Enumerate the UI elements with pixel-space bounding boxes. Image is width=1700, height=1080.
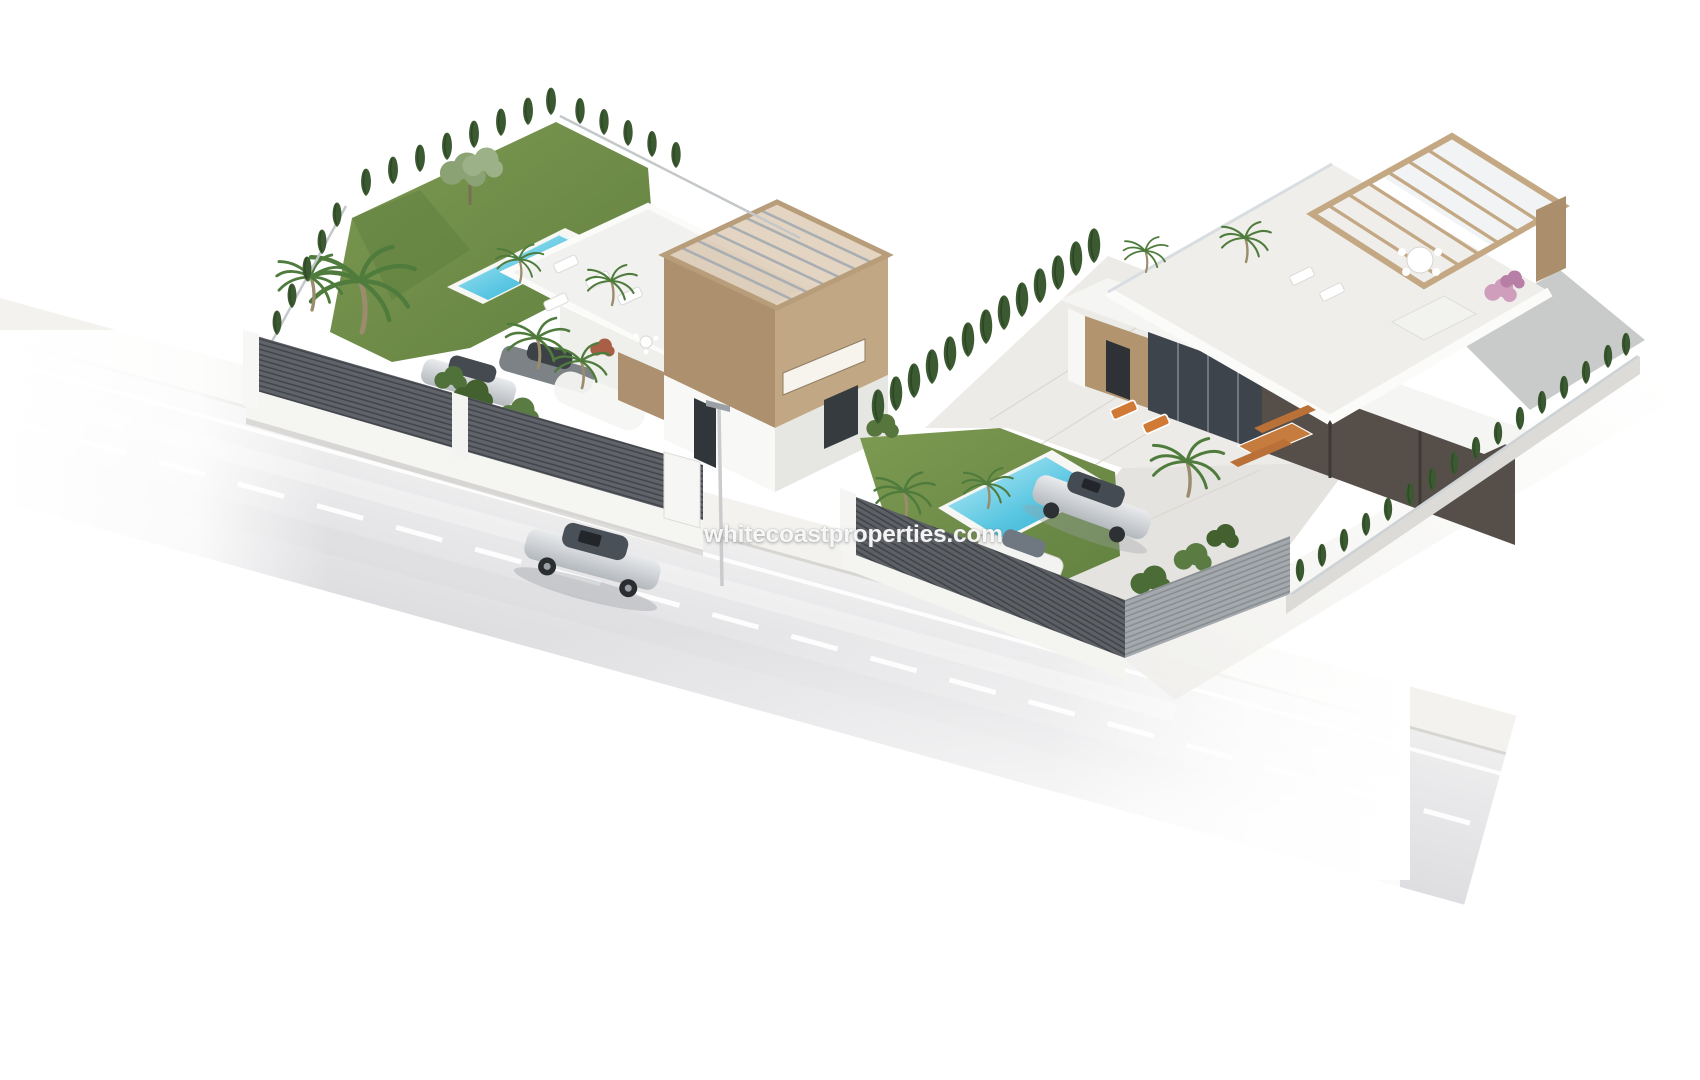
pergola-side-wall [1536, 196, 1566, 282]
roof-chair [1398, 248, 1406, 256]
left-house-window [694, 398, 716, 468]
entrance-pillar [1068, 308, 1085, 388]
property-render: whitecoastproperties.com [0, 0, 1700, 1080]
fence-pier [243, 330, 259, 410]
garden-table [640, 336, 652, 348]
roof-chair [1402, 268, 1410, 276]
roof-chair [1432, 268, 1440, 276]
garden-chair [654, 336, 659, 341]
roof-chair [1434, 248, 1442, 256]
entrance-door [1106, 340, 1130, 400]
white-gate [664, 452, 700, 528]
garden-chair [634, 334, 639, 339]
garden-chair [644, 350, 649, 355]
roof-round-table [1407, 247, 1433, 273]
watermark: whitecoastproperties.com [704, 521, 1004, 549]
fence-pier [452, 392, 468, 462]
right-villa-plot [840, 136, 1690, 700]
